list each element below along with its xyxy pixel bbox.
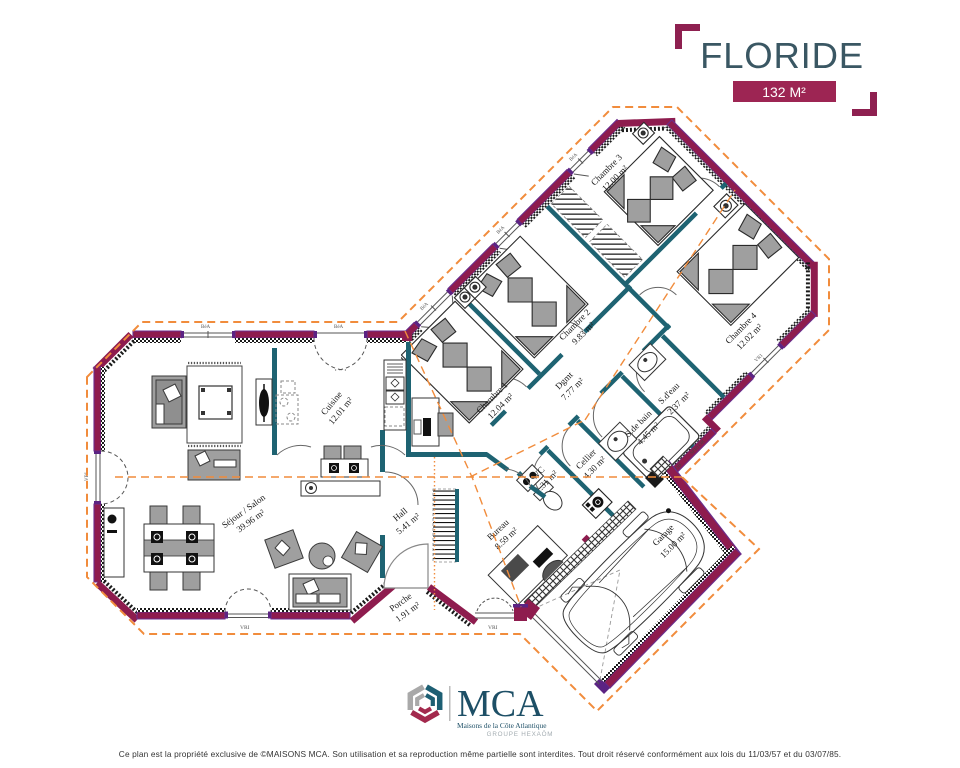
svg-text:FLORIDE: FLORIDE	[700, 35, 864, 76]
svg-text:BéA: BéA	[334, 325, 344, 330]
svg-text:Ce plan est la propriété exclu: Ce plan est la propriété exclusive de ©M…	[119, 749, 841, 759]
svg-text:BéA: BéA	[201, 325, 211, 330]
svg-text:MCA: MCA	[457, 683, 544, 725]
svg-text:132 M²: 132 M²	[762, 84, 806, 100]
svg-text:VRI: VRI	[240, 625, 250, 631]
svg-text:Maisons de la Côte Atlantique: Maisons de la Côte Atlantique	[457, 721, 547, 730]
svg-text:VRI: VRI	[488, 625, 498, 631]
svg-text:GROUPE HEXAÔM: GROUPE HEXAÔM	[487, 729, 554, 738]
